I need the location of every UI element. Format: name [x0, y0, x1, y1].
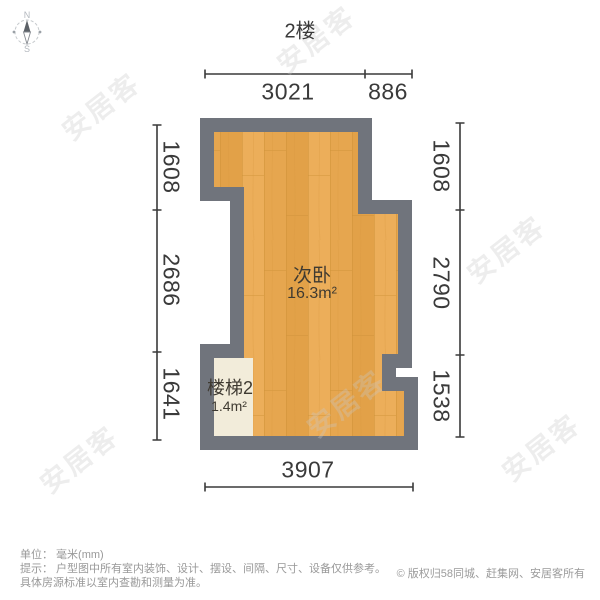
room-area-label: 16.3m² — [287, 285, 337, 303]
dim-line-right — [456, 123, 465, 437]
footer-unit-line: 单位： 毫米(mm) — [20, 548, 386, 562]
footer-tip-line1: 提示： 户型图中所有室内装饰、设计、摆设、间隔、尺寸、设备仅供参考。 — [20, 562, 386, 576]
dim-label-top-3021: 3021 — [261, 79, 314, 106]
dim-label-left-1608: 1608 — [158, 140, 185, 193]
dim-label-left-2686: 2686 — [158, 253, 185, 306]
dim-label-left-1641: 1641 — [158, 367, 185, 420]
dim-label-top-886: 886 — [368, 79, 408, 106]
dim-label-right-1538: 1538 — [428, 369, 455, 422]
dim-label-right-1608: 1608 — [428, 139, 455, 192]
stairs-name-label: 楼梯2 — [207, 374, 253, 400]
stairs-area-label: 1.4m² — [211, 398, 247, 414]
copyright-notice: © 版权归58同城、赶集网、安居客所有 — [397, 565, 585, 581]
compass-south-label: S — [24, 44, 30, 54]
compass-icon — [13, 20, 42, 44]
page-title: 2楼 — [284, 15, 315, 44]
dim-label-bottom-3907: 3907 — [281, 457, 334, 484]
footer-disclaimer: 单位： 毫米(mm) 提示： 户型图中所有室内装饰、设计、摆设、间隔、尺寸、设备… — [20, 548, 386, 591]
dim-line-bottom — [205, 483, 413, 492]
footer-tip-line2: 具体房源标准以室内查勘和测量为准。 — [20, 576, 386, 590]
compass-north-label: N — [24, 10, 31, 20]
dim-line-top — [205, 70, 412, 79]
floorplan-page: N S 2楼 安居客 安居客 安居客 安居客 安居客 安居客 3021 886 … — [0, 0, 600, 600]
room-name-label: 次卧 — [293, 261, 331, 288]
dim-label-right-2790: 2790 — [428, 256, 455, 309]
